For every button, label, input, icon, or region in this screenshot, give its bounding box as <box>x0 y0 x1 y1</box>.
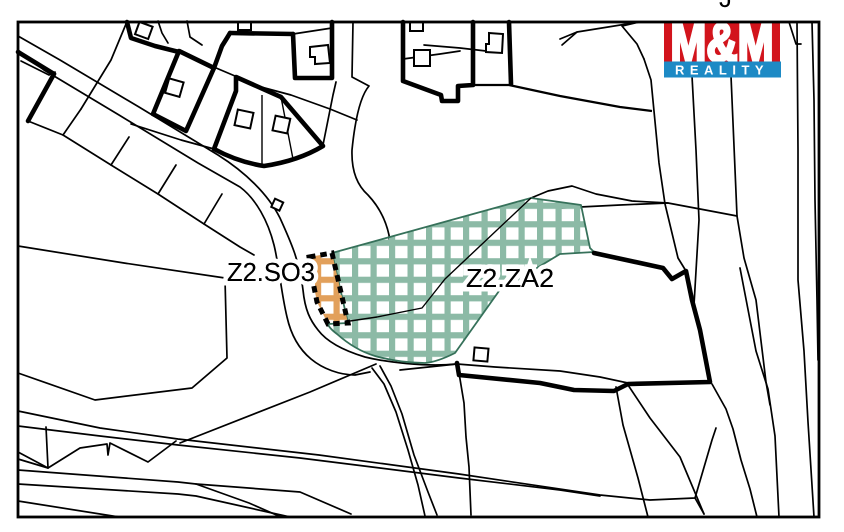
svg-text:J: J <box>719 0 732 13</box>
svg-text:REALITY: REALITY <box>675 63 769 78</box>
svg-text:Z2.ZA2: Z2.ZA2 <box>466 263 554 293</box>
svg-text:Z2.SO3: Z2.SO3 <box>227 257 315 287</box>
